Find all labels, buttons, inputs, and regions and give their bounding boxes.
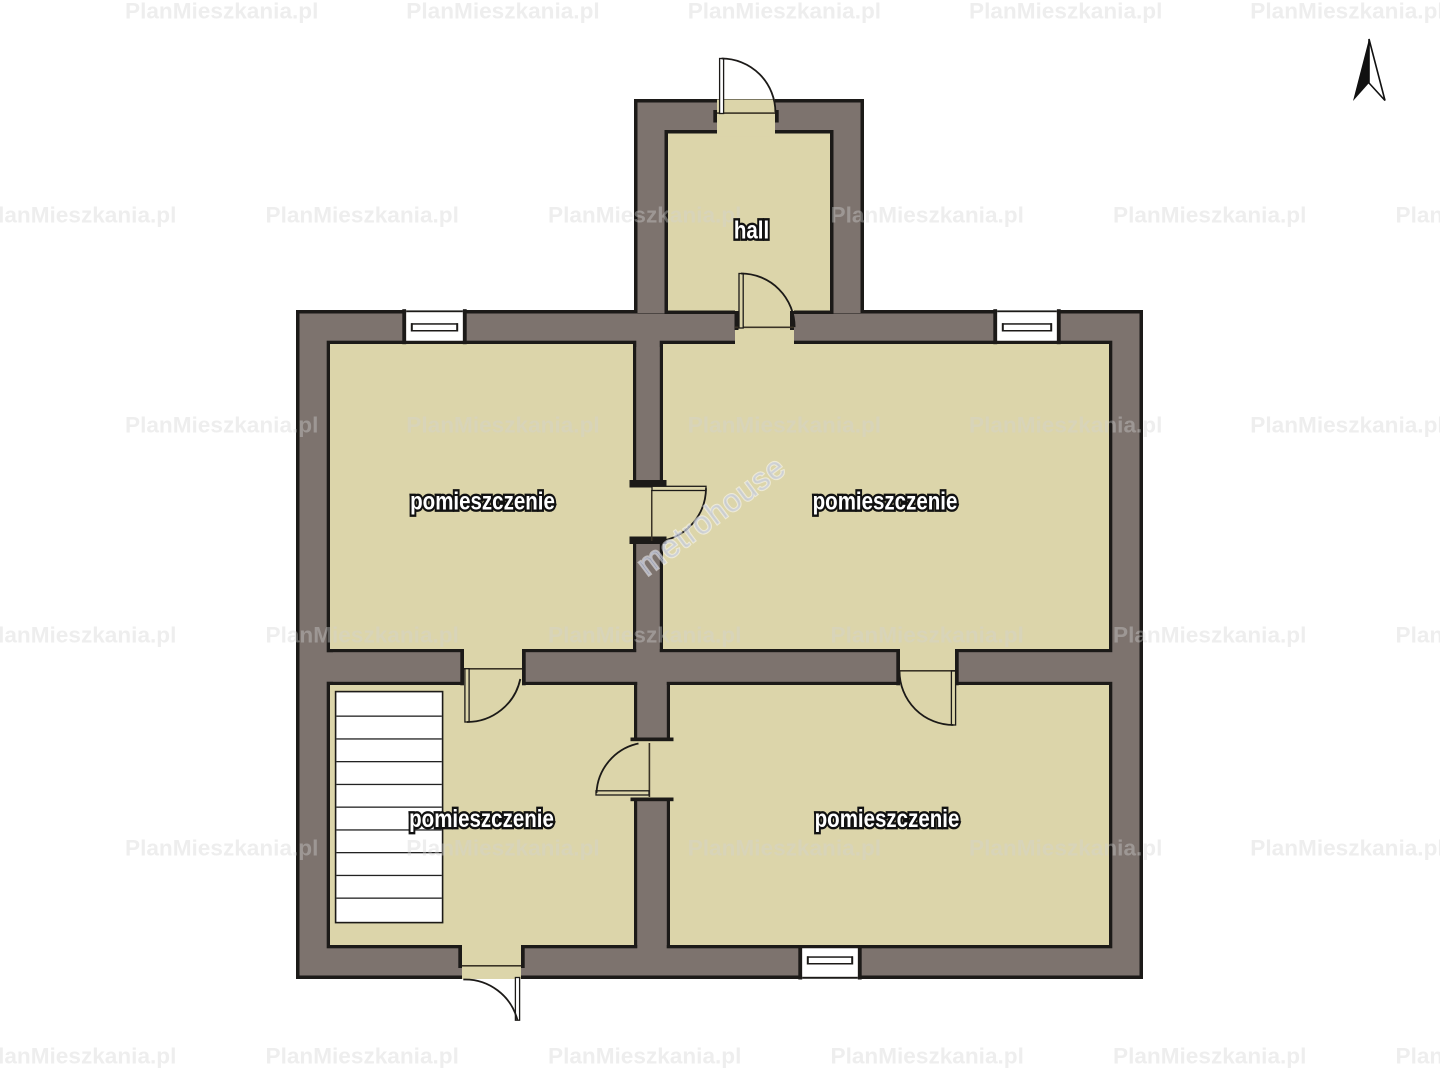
svg-text:PlanMieszkania.pl: PlanMieszkania.pl [969, 413, 1162, 438]
svg-text:PlanMieszkania.pl: PlanMieszkania.pl [831, 1044, 1024, 1069]
svg-text:hall: hall [734, 216, 769, 244]
svg-text:PlanMieszkania.pl: PlanMieszkania.pl [406, 0, 599, 24]
svg-text:PlanMieszkania.pl: PlanMieszkania.pl [688, 0, 881, 24]
svg-text:PlanMieszkania.pl: PlanMieszkania.pl [1250, 0, 1440, 24]
svg-text:PlanMieszkania.pl: PlanMieszkania.pl [688, 836, 881, 861]
svg-text:PlanMieszkania.pl: PlanMieszkania.pl [0, 1044, 176, 1069]
svg-text:PlanMieszkania.pl: PlanMieszkania.pl [0, 203, 176, 228]
svg-text:PlanMieszkania.pl: PlanMieszkania.pl [1396, 203, 1440, 228]
svg-text:pomieszczenie: pomieszczenie [409, 804, 554, 832]
svg-text:PlanMieszkania.pl: PlanMieszkania.pl [1396, 623, 1440, 648]
svg-text:pomieszczenie: pomieszczenie [815, 804, 960, 832]
svg-text:pomieszczenie: pomieszczenie [410, 487, 555, 515]
svg-text:PlanMieszkania.pl: PlanMieszkania.pl [406, 836, 599, 861]
svg-text:PlanMieszkania.pl: PlanMieszkania.pl [548, 623, 741, 648]
svg-text:PlanMieszkania.pl: PlanMieszkania.pl [969, 836, 1162, 861]
svg-text:PlanMieszkania.pl: PlanMieszkania.pl [125, 413, 318, 438]
svg-text:PlanMieszkania.pl: PlanMieszkania.pl [1113, 623, 1306, 648]
svg-text:PlanMieszkania.pl: PlanMieszkania.pl [969, 0, 1162, 24]
svg-text:PlanMieszkania.pl: PlanMieszkania.pl [125, 836, 318, 861]
svg-text:PlanMieszkania.pl: PlanMieszkania.pl [548, 203, 741, 228]
svg-text:PlanMieszkania.pl: PlanMieszkania.pl [406, 413, 599, 438]
svg-text:PlanMieszkania.pl: PlanMieszkania.pl [0, 623, 176, 648]
svg-text:PlanMieszkania.pl: PlanMieszkania.pl [1113, 1044, 1306, 1069]
svg-text:PlanMieszkania.pl: PlanMieszkania.pl [125, 0, 318, 24]
svg-text:pomieszczenie: pomieszczenie [813, 487, 958, 515]
svg-text:PlanMieszkania.pl: PlanMieszkania.pl [1113, 203, 1306, 228]
svg-text:PlanMieszkania.pl: PlanMieszkania.pl [831, 203, 1024, 228]
svg-text:PlanMieszkania.pl: PlanMieszkania.pl [688, 413, 881, 438]
svg-text:PlanMieszkania.pl: PlanMieszkania.pl [548, 1044, 741, 1069]
svg-text:PlanMieszkania.pl: PlanMieszkania.pl [1250, 413, 1440, 438]
svg-text:PlanMieszkania.pl: PlanMieszkania.pl [266, 1044, 459, 1069]
svg-text:PlanMieszkania.pl: PlanMieszkania.pl [1250, 836, 1440, 861]
svg-text:PlanMieszkania.pl: PlanMieszkania.pl [266, 203, 459, 228]
svg-text:PlanMieszkania.pl: PlanMieszkania.pl [831, 623, 1024, 648]
svg-text:PlanMieszkania.pl: PlanMieszkania.pl [266, 623, 459, 648]
svg-text:PlanMieszkania.pl: PlanMieszkania.pl [1396, 1044, 1440, 1069]
